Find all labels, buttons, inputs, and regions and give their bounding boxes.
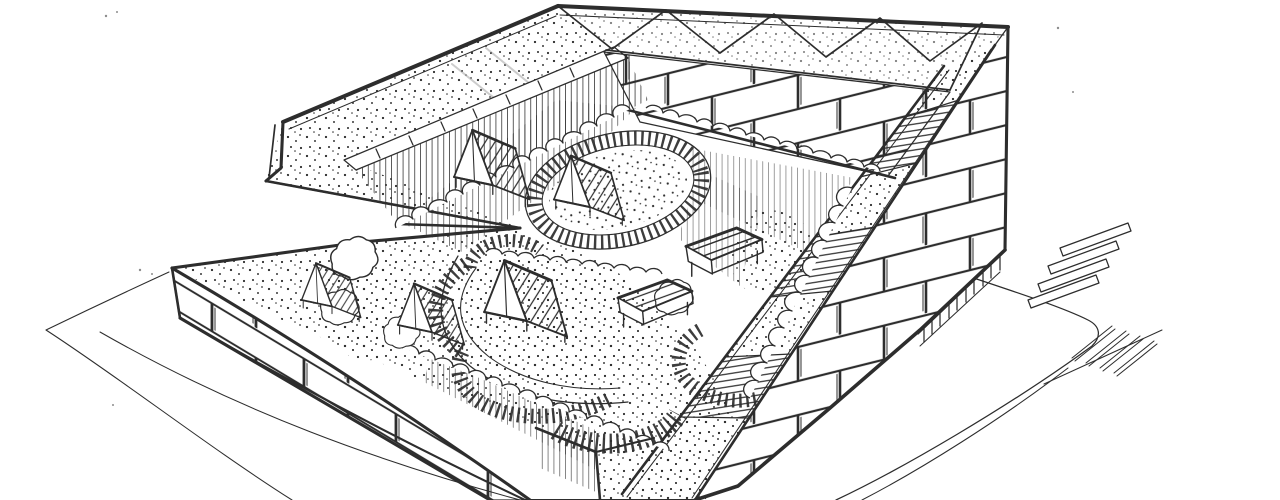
- garden-planting: [598, 444, 708, 500]
- sketch-canvas: Courtyard block building - ink sketch Ha…: [0, 0, 1280, 500]
- sketch-page: Courtyard block building - ink sketch Ha…: [0, 0, 1280, 500]
